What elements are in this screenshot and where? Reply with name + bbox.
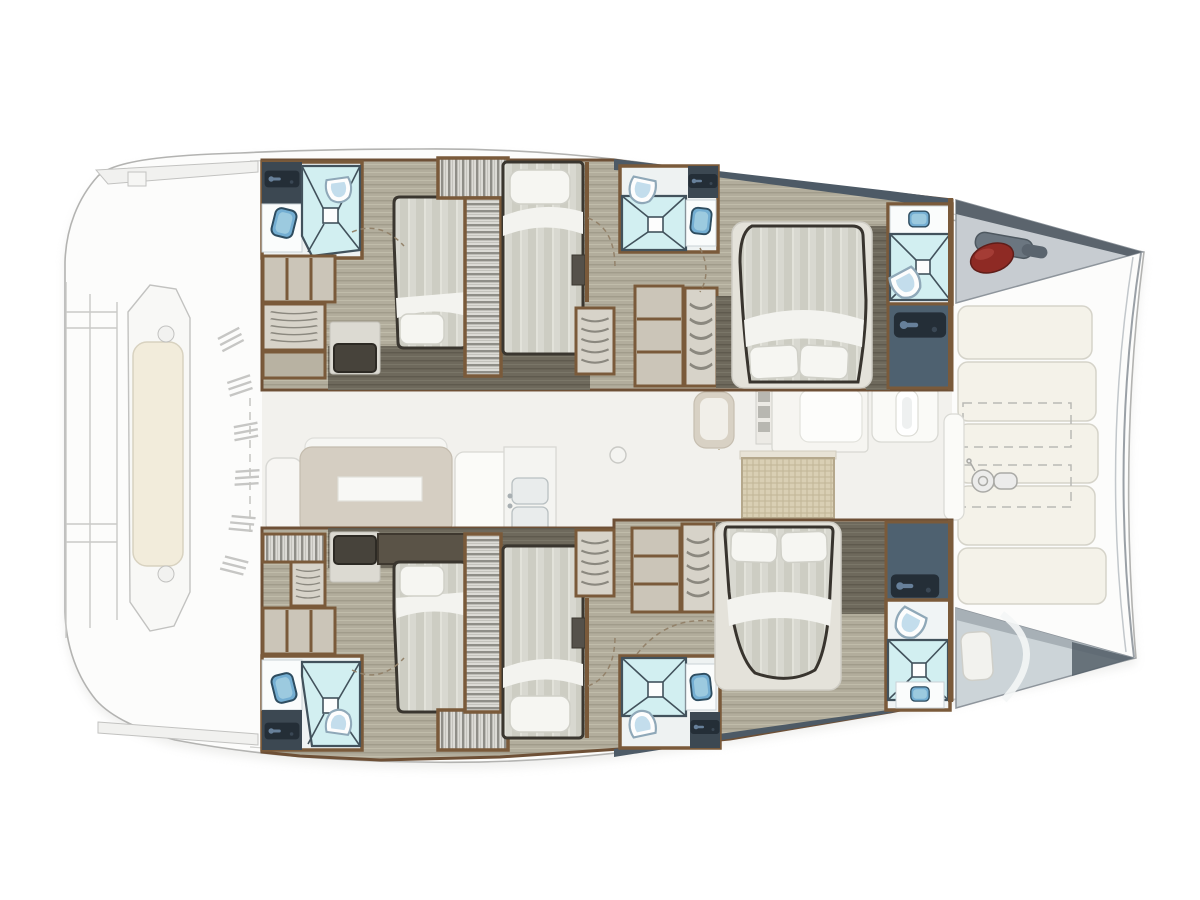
sink — [690, 673, 712, 701]
pillow — [400, 314, 444, 344]
port-aft-head — [262, 162, 362, 258]
pillow — [400, 566, 444, 596]
pillow — [730, 531, 777, 563]
stern-beam-notch-top — [128, 172, 146, 186]
galley-sink — [512, 478, 548, 504]
port-forward-entry — [888, 304, 952, 388]
door-panel — [689, 174, 718, 188]
nightstand — [334, 536, 376, 564]
bulkhead — [948, 198, 953, 390]
bulkhead — [948, 520, 953, 702]
nav-chair — [694, 392, 734, 448]
shower — [622, 196, 686, 250]
forepeak-berth-cushion — [960, 631, 993, 681]
port-aft-wardrobes — [263, 256, 335, 378]
foredeck-sunpads — [958, 306, 1106, 604]
pillow — [510, 696, 570, 732]
stbd-forward-head — [886, 600, 950, 710]
sink — [911, 687, 929, 701]
cup-holder — [158, 566, 174, 582]
galley-faucet — [508, 504, 513, 509]
cup-holder — [158, 326, 174, 342]
stbd-aft-head — [262, 656, 362, 750]
catamaran-floorplan — [0, 0, 1200, 900]
port-hull-interior — [262, 158, 953, 390]
fridge-cells — [758, 392, 770, 432]
floorplan-canvas — [0, 0, 1200, 900]
galley-faucet — [508, 494, 513, 499]
stern-bench — [128, 285, 190, 631]
door-panel — [265, 723, 300, 740]
wicker-cocktail-table — [742, 458, 834, 518]
galley-counter-inset — [800, 390, 862, 442]
door-panel — [891, 574, 939, 597]
salon-coffee-table — [338, 477, 422, 501]
bedside-shelf — [572, 255, 585, 285]
hanging-locker — [438, 710, 508, 750]
salon-main-deck — [262, 384, 964, 539]
wall — [585, 162, 589, 302]
stbd-forward-entry — [886, 522, 950, 600]
table-pedestal — [610, 447, 626, 463]
sink — [690, 207, 712, 235]
pillow — [510, 170, 570, 204]
divider-locker — [465, 534, 501, 712]
port-forward-head — [888, 204, 952, 304]
divider-locker — [465, 198, 501, 376]
port-mid-lockers — [635, 286, 717, 386]
pillow — [749, 345, 799, 379]
door-panel — [265, 171, 300, 188]
shower — [622, 658, 686, 716]
hanging-locker — [438, 158, 508, 198]
door-panel — [894, 312, 946, 337]
pillow — [780, 531, 827, 563]
sink — [909, 211, 929, 227]
hanging-locker — [263, 534, 325, 562]
port-mid-head — [620, 166, 718, 252]
fwd-counter-pill-inset — [902, 397, 912, 429]
salon-tall-unit — [944, 414, 964, 520]
bedside-shelf — [572, 618, 585, 648]
nightstand — [334, 344, 376, 372]
pillow — [799, 345, 849, 379]
stern-bench-cushion — [133, 342, 183, 566]
door-panel — [691, 720, 720, 734]
stbd-mid-lockers — [632, 524, 714, 612]
salon-armrest — [266, 458, 302, 534]
wall — [585, 598, 589, 738]
headboard-shelf — [378, 534, 470, 564]
